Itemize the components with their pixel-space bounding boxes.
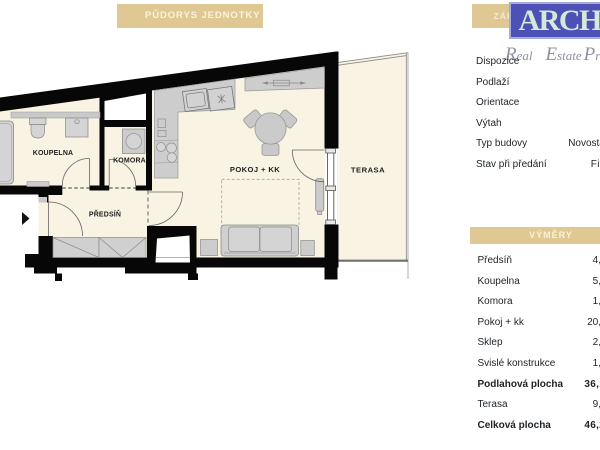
- svg-text:PŘEDSÍŇ: PŘEDSÍŇ: [89, 210, 121, 219]
- svg-text:TERASA: TERASA: [351, 166, 385, 175]
- svg-text:KOMORA: KOMORA: [113, 158, 146, 165]
- svg-text:POKOJ + KK: POKOJ + KK: [230, 165, 280, 174]
- svg-text:KOUPELNA: KOUPELNA: [33, 150, 73, 157]
